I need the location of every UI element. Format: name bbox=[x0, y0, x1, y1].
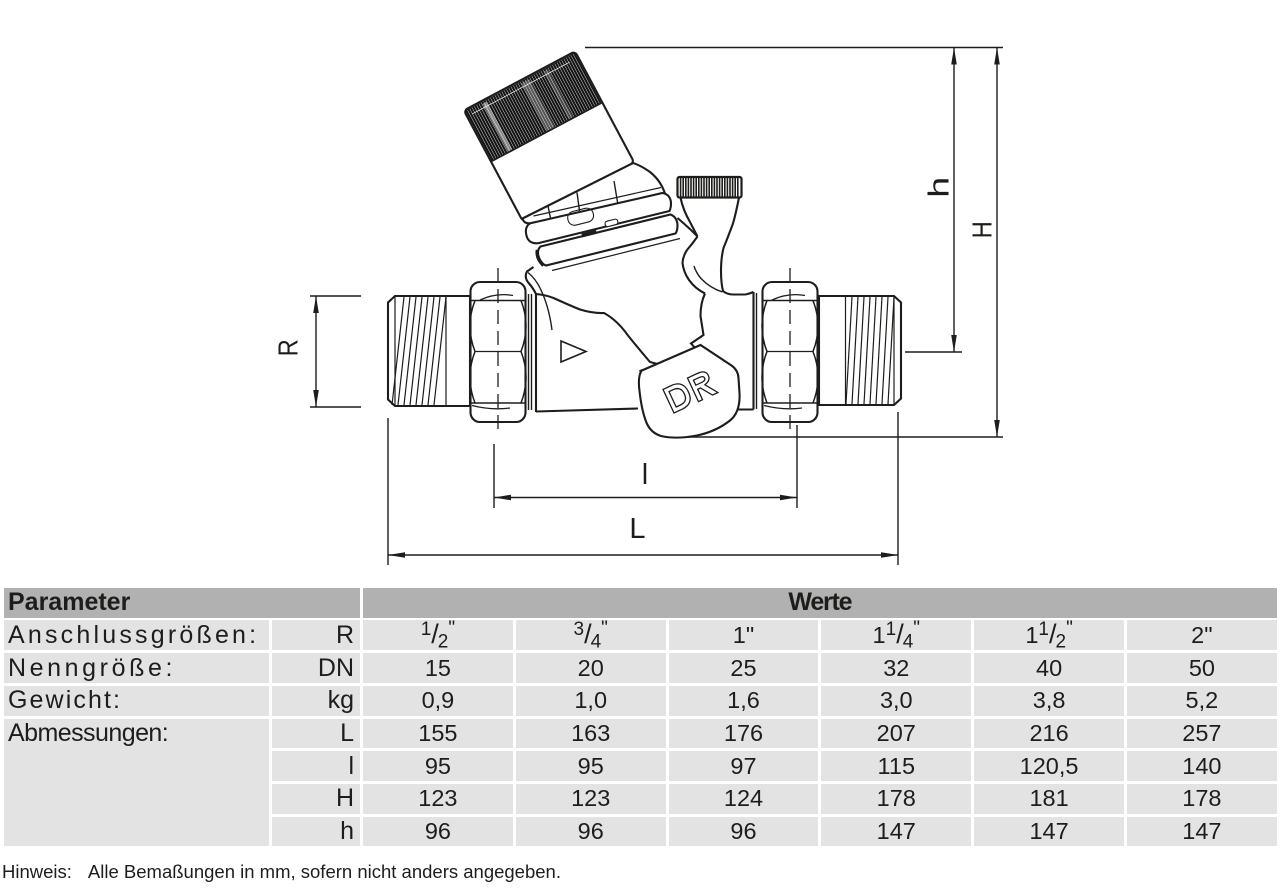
svg-text:R: R bbox=[272, 339, 304, 356]
svg-text:l: l bbox=[642, 459, 648, 491]
svg-text:H: H bbox=[966, 221, 998, 238]
svg-text:L: L bbox=[629, 513, 645, 545]
svg-text:h: h bbox=[923, 177, 955, 198]
